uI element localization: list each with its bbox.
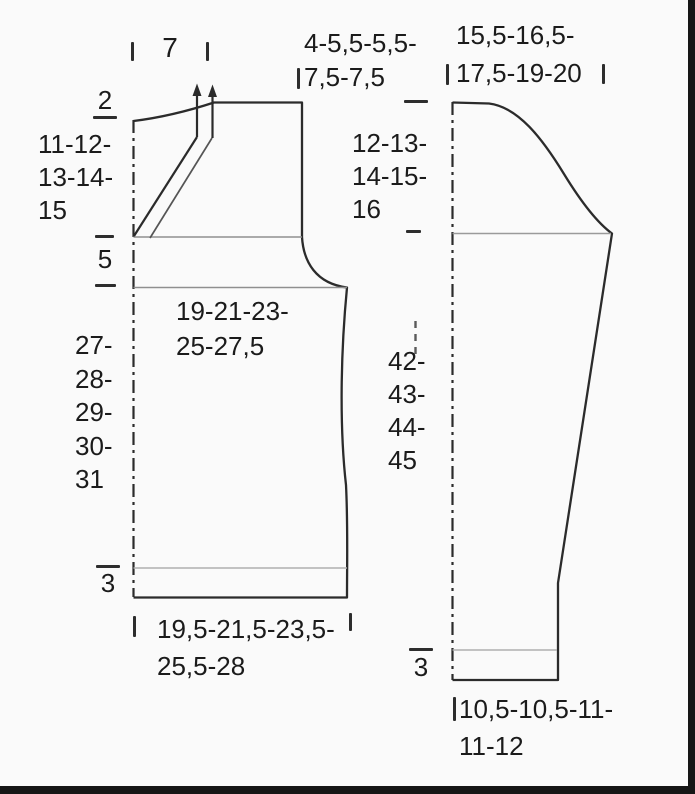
shoulder-diagonal-right	[150, 138, 212, 238]
body-rib-height-label: 3	[96, 567, 120, 600]
body-side-length-label: 27- 28- 29- 30- 31	[75, 329, 113, 497]
measure-tick	[453, 697, 456, 721]
measure-tick	[602, 64, 605, 84]
measure-dash	[406, 230, 421, 233]
sleeve-cuff-width-label: 10,5-10,5-11- 11-12	[459, 691, 613, 765]
measure-dash	[95, 284, 116, 287]
body-yoke-height-label: 5	[92, 243, 118, 276]
measure-tick	[297, 68, 300, 89]
body-chest-width-label: 19-21-23- 25-27,5	[176, 294, 289, 364]
scan-border-bottom	[0, 786, 695, 794]
sleeve-outline	[453, 103, 613, 681]
scan-border-right	[688, 0, 695, 794]
pattern-schematic: 7 2 11-12- 13-14- 15 5 4-5,5-5,5- 7,5-7,…	[0, 0, 695, 794]
sleeve-length-label: 42- 43- 44- 45	[388, 345, 426, 477]
measure-tick	[131, 42, 134, 61]
measure-dash	[404, 100, 428, 103]
body-neck-height-label: 2	[92, 84, 118, 117]
body-shoulder-width-label: 7	[150, 31, 190, 64]
body-hem-width-label: 19,5-21,5-23,5- 25,5-28	[157, 611, 335, 685]
shoulder-diagonal-left	[134, 137, 197, 236]
direction-arrow-right	[208, 85, 217, 139]
measure-tick	[349, 613, 352, 631]
body-raglan-depth-label: 11-12- 13-14- 15	[38, 128, 113, 227]
measure-tick	[133, 616, 136, 637]
measure-tick	[206, 42, 209, 61]
sleeve-cap-height-label: 12-13- 14-15- 16	[352, 127, 427, 226]
measure-dash	[95, 235, 114, 238]
direction-arrow-left	[193, 84, 202, 138]
measure-tick	[446, 64, 449, 85]
sleeve-rib-height-label: 3	[408, 651, 434, 684]
body-upper-shoulder-width-label: 4-5,5-5,5- 7,5-7,5	[304, 26, 417, 94]
sleeve-upper-arm-width-label: 15,5-16,5- 17,5-19-20	[456, 16, 582, 92]
